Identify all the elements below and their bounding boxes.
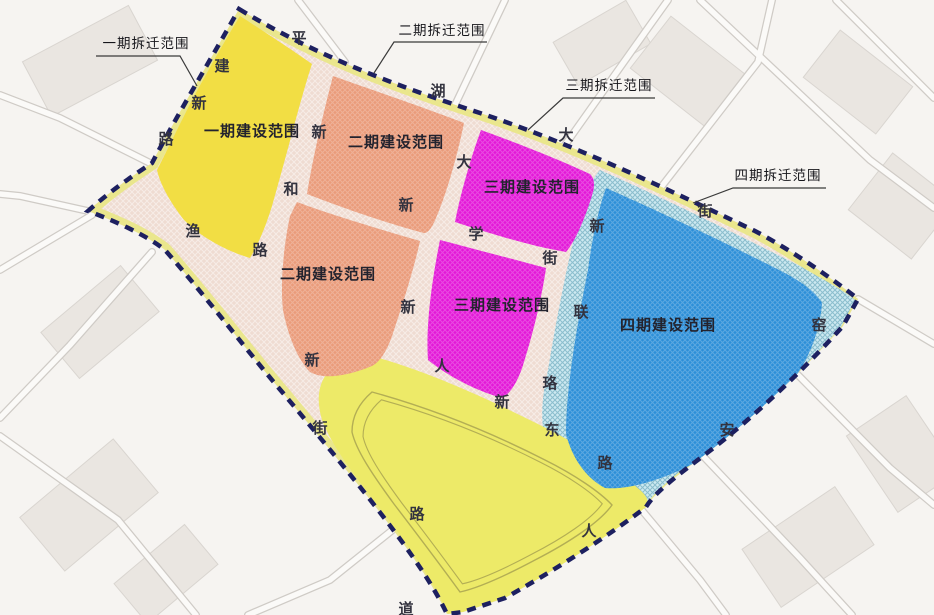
road-char: 渔	[185, 222, 200, 240]
road-char: 路	[252, 241, 268, 259]
road-char: 新	[494, 393, 509, 411]
road-char: 珞	[542, 374, 558, 392]
road-char: 东	[544, 421, 559, 439]
road-char: 平	[291, 30, 306, 47]
road-char: 人	[581, 523, 597, 540]
planning-map-screenshot: 一期拆迁范围 二期拆迁范围 三期拆迁范围 四期拆迁范围 一期建设范围 二期建设范…	[0, 0, 934, 615]
road-char: 大	[456, 153, 471, 171]
road-char: 街	[541, 249, 557, 267]
callout-phase4-demolition: 四期拆迁范围	[735, 168, 822, 183]
road-char: 街	[696, 202, 712, 220]
road-char: 建	[214, 57, 230, 75]
road-char: 街	[311, 419, 327, 437]
road-char: 新	[304, 351, 319, 369]
road-char: 和	[283, 181, 298, 198]
road-char: 路	[409, 505, 425, 523]
road-char: 新	[400, 298, 415, 316]
callout-phase2-demolition: 二期拆迁范围	[399, 23, 486, 38]
road-char: 路	[158, 130, 174, 148]
label-phase3-construction-south: 三期建设范围	[454, 296, 550, 314]
road-char: 新	[398, 196, 413, 214]
road-char: 学	[468, 225, 483, 243]
label-phase4-construction: 四期建设范围	[620, 316, 716, 334]
label-phase2-construction-north: 二期建设范围	[348, 133, 444, 151]
label-phase1-construction: 一期建设范围	[204, 122, 300, 140]
road-char: 新	[311, 123, 326, 141]
label-phase3-construction-north: 三期建设范围	[484, 178, 580, 196]
road-char: 湖	[430, 83, 445, 100]
road-char: 新	[589, 217, 604, 235]
road-char: 人	[434, 358, 450, 375]
map-canvas: 一期拆迁范围 二期拆迁范围 三期拆迁范围 四期拆迁范围 一期建设范围 二期建设范…	[0, 0, 934, 615]
callout-phase1-demolition: 一期拆迁范围	[103, 36, 190, 51]
road-char: 路	[597, 454, 613, 472]
road-char: 大	[558, 126, 573, 144]
road-char: 联	[573, 304, 589, 321]
road-char: 道	[398, 600, 413, 615]
road-char: 安	[719, 421, 734, 439]
callout-phase3-demolition: 三期拆迁范围	[566, 78, 653, 93]
road-char: 窑	[811, 316, 826, 334]
road-char: 新	[191, 94, 206, 112]
label-phase2-construction-south: 二期建设范围	[280, 265, 376, 283]
